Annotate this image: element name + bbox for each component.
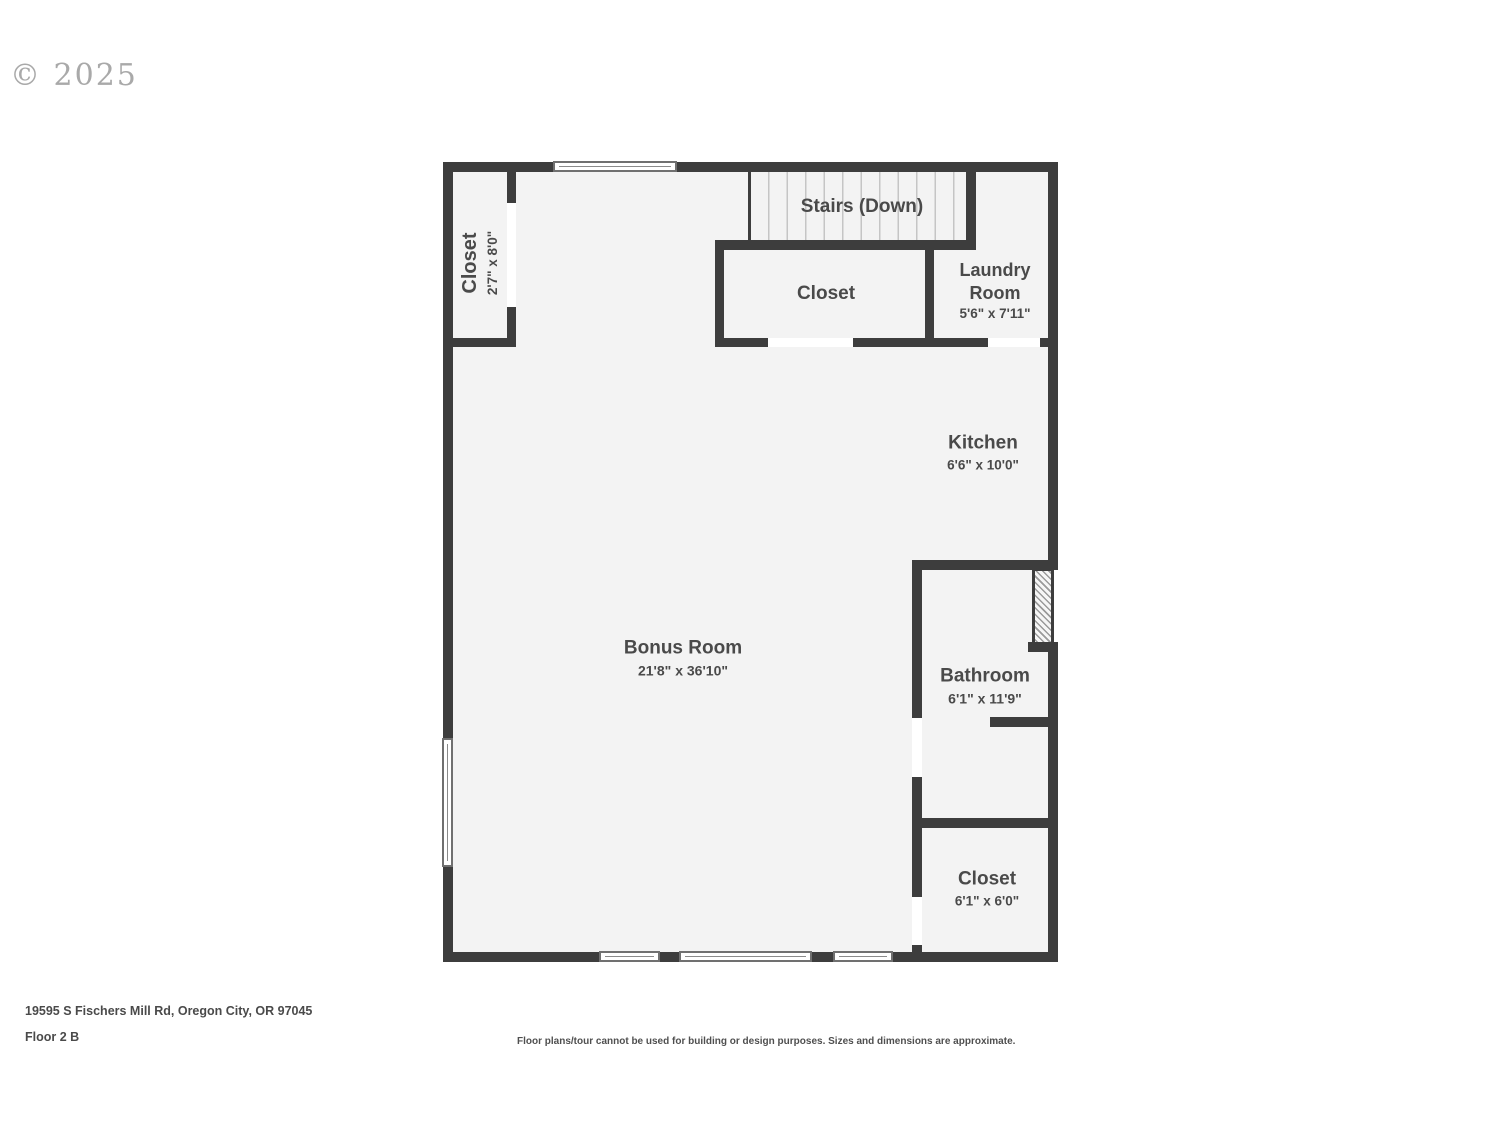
window-left [442, 738, 453, 867]
door-middle-closet [768, 338, 853, 347]
footer-floor-label: Floor 2 B [25, 1030, 79, 1044]
room-dims: 6'1" x 11'9" [940, 690, 1030, 708]
room-name: Stairs (Down) [801, 195, 923, 219]
door-top-left-closet [507, 203, 516, 307]
room-dims: 21'8" x 36'10" [624, 662, 742, 680]
room-label-laundry: Laundry Room 5'6" x 7'11" [943, 259, 1047, 323]
door-bottom-closet [912, 897, 922, 945]
shower-hatch-area [1032, 568, 1054, 648]
room-label-closet-top-left: Closet 2'7" x 8'0" [458, 231, 502, 295]
room-label-bathroom: Bathroom 6'1" x 11'9" [940, 664, 1030, 707]
room-dims: 6'6" x 10'0" [947, 457, 1019, 474]
footer-disclaimer: Floor plans/tour cannot be used for buil… [517, 1036, 1015, 1047]
window-bottom-1 [599, 951, 660, 962]
window-top [553, 161, 677, 172]
room-name: Laundry Room [943, 259, 1047, 304]
wall-section-bottom-a [715, 338, 768, 347]
room-label-kitchen: Kitchen 6'6" x 10'0" [947, 432, 1019, 475]
copyright-watermark: © 2025 [10, 58, 138, 93]
wall-bathroom-left [912, 560, 922, 828]
room-name: Bonus Room [624, 636, 742, 660]
room-name: Bathroom [940, 664, 1030, 688]
room-name: Closet [955, 868, 1019, 892]
door-laundry [988, 338, 1040, 347]
wall-bathroom-closet-divider [912, 818, 1048, 828]
footer-address: 19595 S Fischers Mill Rd, Oregon City, O… [25, 1004, 312, 1018]
wall-section-bottom-b [853, 338, 988, 347]
window-bottom-3 [833, 951, 893, 962]
wall-top-left-closet-bottom [453, 338, 516, 347]
wall-bathroom-top [912, 560, 1048, 570]
door-bathroom [912, 718, 922, 777]
wall-middle-closet-right [925, 240, 934, 347]
room-label-closet-middle: Closet [797, 282, 855, 306]
wall-hatch-stub [1028, 642, 1058, 652]
room-label-closet-bottom-right: Closet 6'1" x 6'0" [955, 868, 1019, 911]
floor-plan-page: © 2025 Closet 2'7" x 8'0" Stairs (Down) … [0, 0, 1500, 1125]
wall-stairs-right [966, 172, 976, 250]
room-label-stairs: Stairs (Down) [801, 195, 923, 219]
wall-middle-closet-left [715, 240, 724, 347]
room-dims: 5'6" x 7'11" [943, 306, 1047, 323]
wall-bathroom-stub [990, 717, 1048, 727]
window-bottom-2 [679, 951, 812, 962]
room-label-bonus-room: Bonus Room 21'8" x 36'10" [624, 636, 742, 679]
room-name: Kitchen [947, 432, 1019, 456]
room-name: Closet [797, 282, 855, 306]
room-name: Closet [458, 231, 483, 295]
wall-section-bottom-c [1040, 338, 1048, 347]
room-dims: 2'7" x 8'0" [485, 231, 502, 295]
room-dims: 6'1" x 6'0" [955, 893, 1019, 910]
wall-stairs-bottom [715, 240, 976, 250]
